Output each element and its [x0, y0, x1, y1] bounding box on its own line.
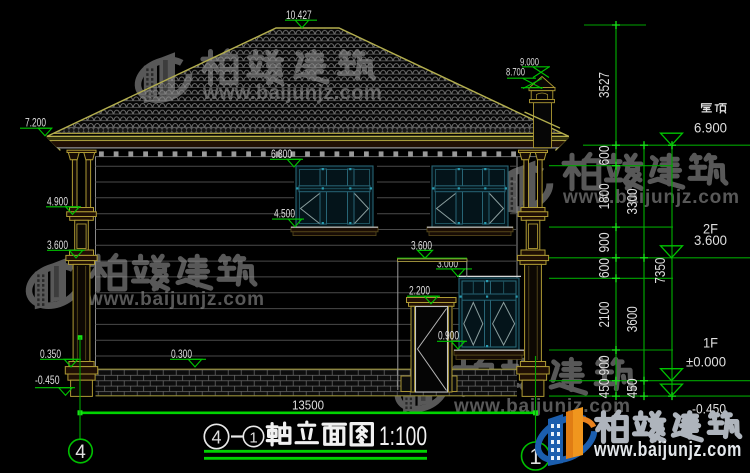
svg-text:www.baijunjz.com: www.baijunjz.com: [593, 439, 742, 461]
svg-text:1:100: 1:100: [379, 421, 427, 451]
svg-text:13500: 13500: [292, 398, 324, 413]
svg-text:1F: 1F: [703, 335, 718, 351]
svg-text:450: 450: [596, 378, 613, 398]
svg-text:2.200: 2.200: [409, 285, 430, 297]
svg-text:2100: 2100: [596, 302, 613, 328]
svg-text:www.baijunjz.com: www.baijunjz.com: [202, 82, 382, 104]
svg-text:6.900: 6.900: [694, 120, 727, 136]
svg-text:7350: 7350: [652, 258, 669, 284]
svg-text:4: 4: [211, 428, 221, 448]
svg-text:3527: 3527: [596, 72, 613, 98]
svg-text:8.700: 8.700: [506, 67, 525, 79]
svg-text:1800: 1800: [596, 183, 613, 209]
svg-text:±0.000: ±0.000: [686, 353, 726, 369]
svg-text:900: 900: [596, 355, 613, 375]
svg-text:4: 4: [75, 442, 86, 463]
svg-text:3300: 3300: [624, 189, 641, 215]
svg-text:450: 450: [624, 378, 641, 398]
svg-text:3600: 3600: [624, 306, 641, 332]
svg-text:www.baijunjz.com: www.baijunjz.com: [562, 187, 740, 208]
svg-text:600: 600: [596, 258, 613, 278]
svg-text:-0.450: -0.450: [35, 375, 60, 387]
svg-text:www.baijunjz.com: www.baijunjz.com: [87, 289, 265, 310]
svg-text:1: 1: [249, 430, 257, 447]
svg-text:600: 600: [596, 146, 613, 166]
svg-text:3.600: 3.600: [694, 232, 727, 248]
svg-text:900: 900: [596, 233, 613, 253]
